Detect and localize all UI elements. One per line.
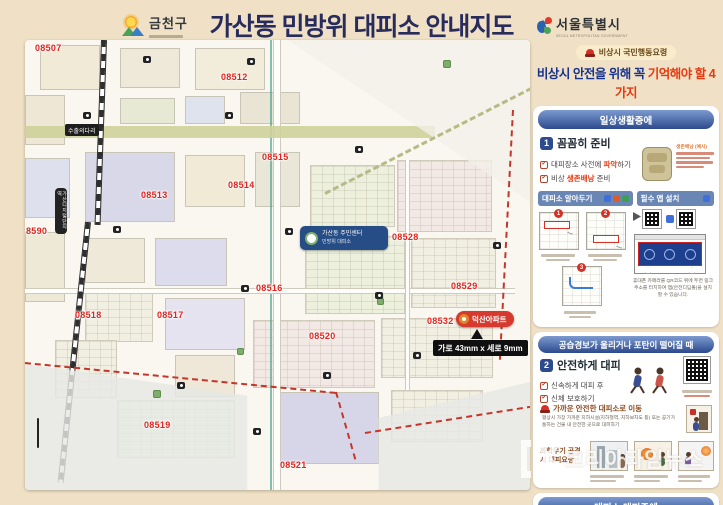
station-label-oval bbox=[37, 418, 39, 448]
chem-caption-1 bbox=[590, 473, 626, 482]
camera-marker-icon bbox=[493, 242, 501, 249]
seoul-city-subtext: SEOUL METROPOLITAN GOVERNMENT bbox=[556, 34, 628, 38]
qr-code bbox=[643, 210, 661, 228]
camera-marker-icon bbox=[241, 285, 249, 292]
shelter-number: 08519 bbox=[144, 420, 171, 430]
siren-icon bbox=[540, 405, 550, 413]
subheader-know-shelter: 대피소 알아두기 bbox=[538, 191, 633, 206]
app-store-icon bbox=[666, 215, 674, 223]
step-number: 1 bbox=[540, 137, 553, 150]
chemical-attack-title: 화학무기 공격시 대피요령 bbox=[540, 447, 586, 465]
survival-bag-caption: 생존배낭 (예시) bbox=[676, 143, 718, 168]
park-icon bbox=[443, 60, 451, 68]
chem-illustration-1 bbox=[590, 441, 628, 471]
checkbox-icon: ✔ bbox=[540, 161, 548, 169]
shelter-entry-illustration bbox=[686, 405, 712, 433]
map-parcel-zone bbox=[310, 165, 395, 227]
chem-illustration-3 bbox=[678, 441, 714, 471]
panel-inside-shelter: 대피소 대피중에 3 귀 기울여 정부 안내방송 듣기 4 질서유지 및 상호배… bbox=[533, 493, 719, 505]
map-block bbox=[155, 238, 227, 286]
app-button-icon bbox=[664, 249, 675, 260]
badge-label: 비상시 국민행동요령 bbox=[599, 47, 667, 58]
map-stream-line bbox=[270, 40, 272, 490]
qr-caption-bars bbox=[682, 388, 714, 397]
camera-marker-icon bbox=[375, 292, 383, 299]
map-parcel-zone bbox=[411, 238, 496, 308]
map-block bbox=[85, 238, 145, 283]
instructions-sidebar: 비상시 국민행동요령 비상시 안전을 위해 꼭 기억해야 할 4가지 일상생활중… bbox=[533, 45, 719, 505]
map-block bbox=[120, 98, 175, 124]
shelter-number: 08517 bbox=[157, 310, 184, 320]
checklist-item: ✔신속하게 대피 후 bbox=[540, 380, 603, 391]
shelter-number: 08518 bbox=[75, 310, 102, 320]
apartment-pill: 덕산아파트 bbox=[456, 311, 514, 327]
app-button-icon bbox=[644, 249, 655, 260]
camera-marker-icon bbox=[177, 382, 185, 389]
poi-subname: 민방위 대피소 bbox=[322, 239, 362, 245]
checkbox-icon: ✔ bbox=[540, 395, 548, 403]
shelter-number: 08516 bbox=[256, 283, 283, 293]
checkbox-icon: ✔ bbox=[540, 382, 548, 390]
app-screenshot bbox=[634, 234, 706, 274]
pointer-arrow-icon bbox=[471, 329, 483, 339]
section-header: 공습경보가 울리거나 포탄이 떨어질 때 bbox=[538, 336, 714, 353]
camera-marker-icon bbox=[355, 146, 363, 153]
chem-illustration-2 bbox=[634, 441, 672, 471]
map-block bbox=[195, 48, 265, 90]
item-title: 안전하게 대피 bbox=[557, 357, 621, 373]
government-emblem-icon bbox=[305, 232, 318, 245]
step3-caption bbox=[564, 309, 600, 318]
item-title: 꼼꼼히 준비 bbox=[557, 135, 611, 151]
shelter-number: 08507 bbox=[35, 43, 62, 53]
step-number: 2 bbox=[540, 359, 553, 372]
camera-marker-icon bbox=[143, 56, 151, 63]
section-header: 일상생활중에 bbox=[538, 110, 714, 129]
step1-thumbnail: 1 bbox=[539, 212, 579, 250]
map-block bbox=[165, 298, 245, 350]
step1-badge: 1 bbox=[554, 209, 563, 218]
subheader-install-app: 필수 앱 설치 bbox=[637, 191, 714, 206]
app-store-icon bbox=[703, 195, 710, 202]
chem-caption-3 bbox=[678, 473, 712, 482]
shelter-number: 08528 bbox=[392, 232, 419, 242]
camera-marker-icon bbox=[323, 372, 331, 379]
park-icon bbox=[237, 348, 244, 355]
shelter-map: 수출의다리 가산디지털단지역 08507 08512 08513 08514 0… bbox=[25, 40, 530, 490]
camera-marker-icon bbox=[225, 112, 233, 119]
checklist-item: ✔ 비상 생존배낭 준비 bbox=[540, 173, 610, 184]
map-app-icon bbox=[613, 195, 620, 202]
seoul-city-logo: 서울특별시 SEOUL METROPOLITAN GOVERNMENT bbox=[536, 14, 628, 38]
panel-air-raid: 공습경보가 울리거나 포탄이 떨어질 때 2 안전하게 대피 ✔신속하게 대피 … bbox=[533, 332, 719, 488]
checklist-item: ✔ 대피장소 사전에 파악하기 bbox=[540, 159, 631, 170]
camera-marker-icon bbox=[413, 352, 421, 359]
camera-marker-icon bbox=[285, 228, 293, 235]
move-description: 평상시 가장 가까운 지하시설(지하철역, 지하보차도 등) 또는 공기가 통하… bbox=[542, 415, 680, 429]
qr-code bbox=[684, 357, 710, 383]
step2-caption bbox=[588, 252, 624, 261]
seoul-emblem-icon bbox=[536, 17, 552, 35]
apartment-name: 덕산아파트 bbox=[472, 314, 507, 325]
step2-thumbnail: 2 bbox=[586, 212, 626, 250]
park-icon bbox=[377, 298, 384, 305]
camera-marker-icon bbox=[113, 226, 121, 233]
shelter-number: 8590 bbox=[26, 226, 47, 236]
sidebar-title-pre: 비상시 안전을 위해 꼭 bbox=[537, 67, 648, 81]
shelter-number: 08521 bbox=[280, 460, 307, 470]
play-store-icon bbox=[633, 212, 641, 221]
poi-name: 가산동 주민센터 bbox=[322, 231, 362, 239]
size-annotation: 가로 43mm x 세로 9mm bbox=[433, 340, 528, 356]
chem-caption-2 bbox=[634, 473, 670, 482]
seoul-city-label: 서울특별시 bbox=[556, 17, 621, 32]
shelter-number: 08532 bbox=[427, 316, 454, 326]
camera-marker-icon bbox=[253, 428, 261, 435]
move-title: 가까운 안전한 대피소로 이동 bbox=[553, 403, 642, 414]
shelter-number: 08512 bbox=[221, 72, 248, 82]
apartment-marker-icon bbox=[459, 314, 469, 324]
section-header: 대피소 대피중에 bbox=[538, 497, 714, 505]
checkbox-icon: ✔ bbox=[540, 175, 548, 183]
step3-badge: 3 bbox=[577, 263, 586, 272]
qr-code bbox=[677, 210, 695, 228]
camera-marker-icon bbox=[247, 58, 255, 65]
map-road bbox=[273, 40, 281, 490]
station-label: 가산디지털단지역 bbox=[55, 188, 67, 234]
siren-icon bbox=[585, 49, 595, 57]
poster-page: 금천구 가산동 민방위 대피소 안내지도 서울특별시 SEOUL METROPO… bbox=[0, 0, 723, 505]
step3-thumbnail: 3 bbox=[562, 266, 602, 306]
emergency-guideline-badge: 비상시 국민행동요령 bbox=[576, 45, 676, 60]
shelter-number: 08520 bbox=[309, 331, 336, 341]
app-button-icon bbox=[685, 249, 696, 260]
map-app-icon bbox=[622, 195, 629, 202]
panel-daily-life: 일상생활중에 1 꼼꼼히 준비 ✔ 대피장소 사전에 파악하기 ✔ 비상 생존배… bbox=[533, 106, 719, 327]
running-people-illustration bbox=[624, 365, 676, 395]
shelter-number: 08515 bbox=[262, 152, 289, 162]
map-block bbox=[120, 48, 180, 88]
map-block bbox=[277, 392, 379, 464]
map-road bbox=[405, 160, 410, 390]
map-block bbox=[185, 96, 225, 124]
road-label: 수출의다리 bbox=[65, 124, 99, 136]
sidebar-title: 비상시 안전을 위해 꼭 기억해야 할 4가지 bbox=[533, 63, 719, 101]
shelter-number: 08513 bbox=[141, 190, 168, 200]
map-parcel-zone bbox=[397, 160, 492, 232]
survival-bag-illustration bbox=[642, 147, 672, 181]
map-app-icon bbox=[604, 195, 611, 202]
step1-caption bbox=[541, 252, 577, 261]
step2-badge: 2 bbox=[601, 209, 610, 218]
qr-caption: 휴대폰 카메라를 QR코드 위에 두면 링크주소를 터치하여 앱(안전디딤돌)을… bbox=[632, 278, 714, 300]
park-icon bbox=[153, 390, 161, 398]
camera-marker-icon bbox=[83, 112, 91, 119]
community-center-badge: 가산동 주민센터 민방위 대피소 bbox=[300, 226, 388, 250]
shelter-number: 08529 bbox=[451, 281, 478, 291]
shelter-number: 08514 bbox=[228, 180, 255, 190]
